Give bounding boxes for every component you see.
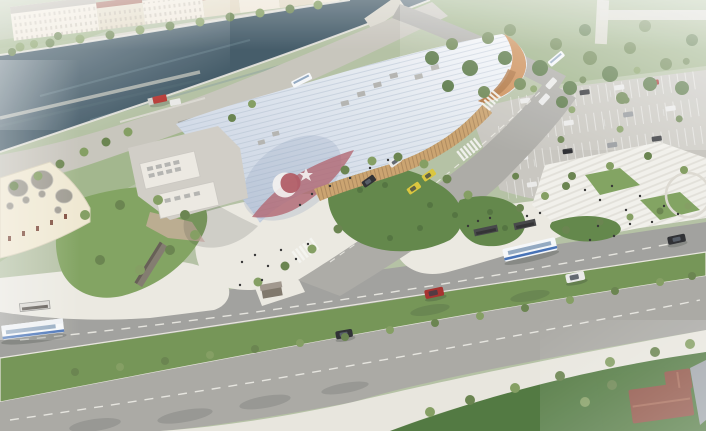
- aerial-render: [0, 0, 706, 431]
- haze-overlays: [0, 0, 706, 431]
